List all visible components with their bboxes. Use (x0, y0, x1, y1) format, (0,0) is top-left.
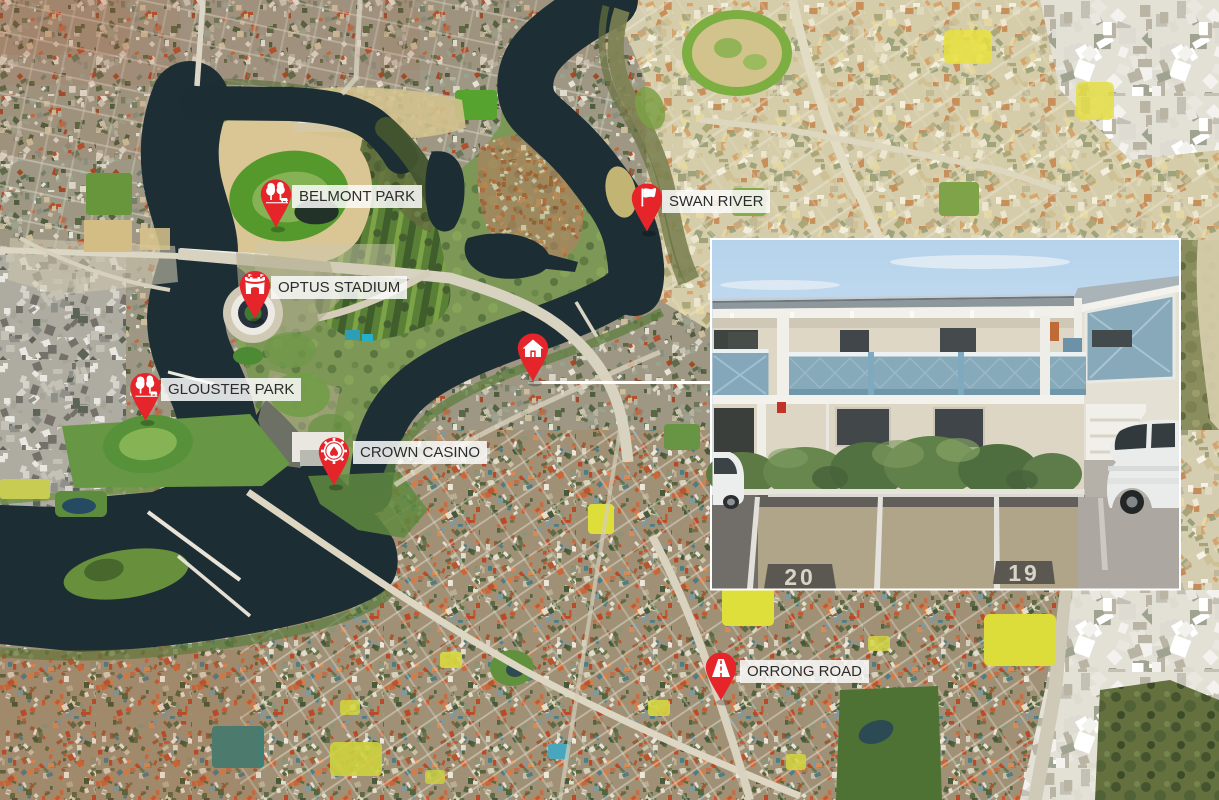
svg-text:20: 20 (784, 564, 816, 590)
svg-text:19: 19 (1008, 560, 1040, 586)
